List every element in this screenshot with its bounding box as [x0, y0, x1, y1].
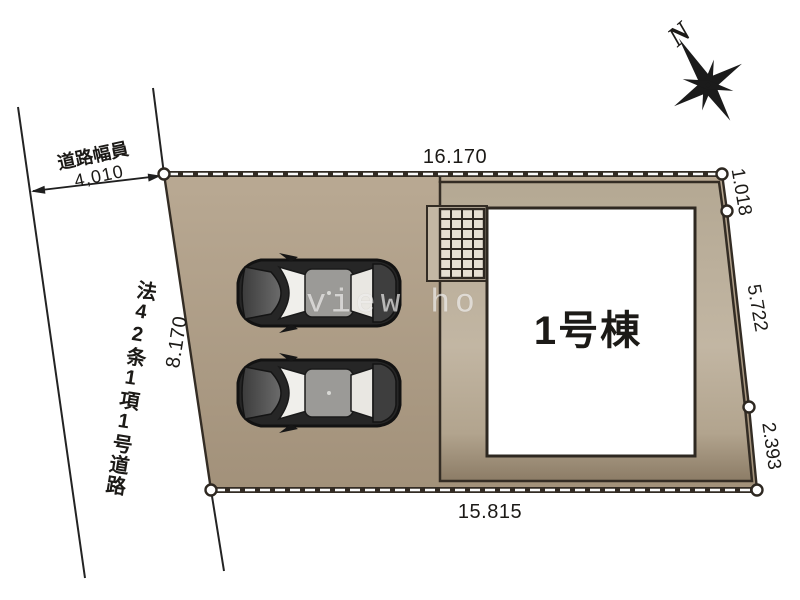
compass-rose-icon — [645, 17, 764, 142]
survey-point-marker — [722, 206, 733, 217]
building-label: 1号棟 — [534, 311, 642, 351]
dimension-top-label: 16.170 — [423, 147, 487, 167]
survey-point-marker — [206, 485, 217, 496]
entrance-porch-grid — [427, 206, 487, 281]
watermark: view ho — [306, 287, 480, 320]
survey-point-marker — [752, 485, 763, 496]
car-icon — [238, 353, 400, 433]
dimension-bottom-label: 15.815 — [458, 502, 522, 522]
road-edge-right-lower — [211, 490, 224, 571]
site-plan-canvas: 道路幅員 4,010 法42条1項1号道路 16.170 15.815 8.17… — [0, 0, 800, 600]
survey-point-marker — [744, 402, 755, 413]
road-edge-right-upper — [153, 88, 164, 174]
survey-point-marker — [159, 169, 170, 180]
